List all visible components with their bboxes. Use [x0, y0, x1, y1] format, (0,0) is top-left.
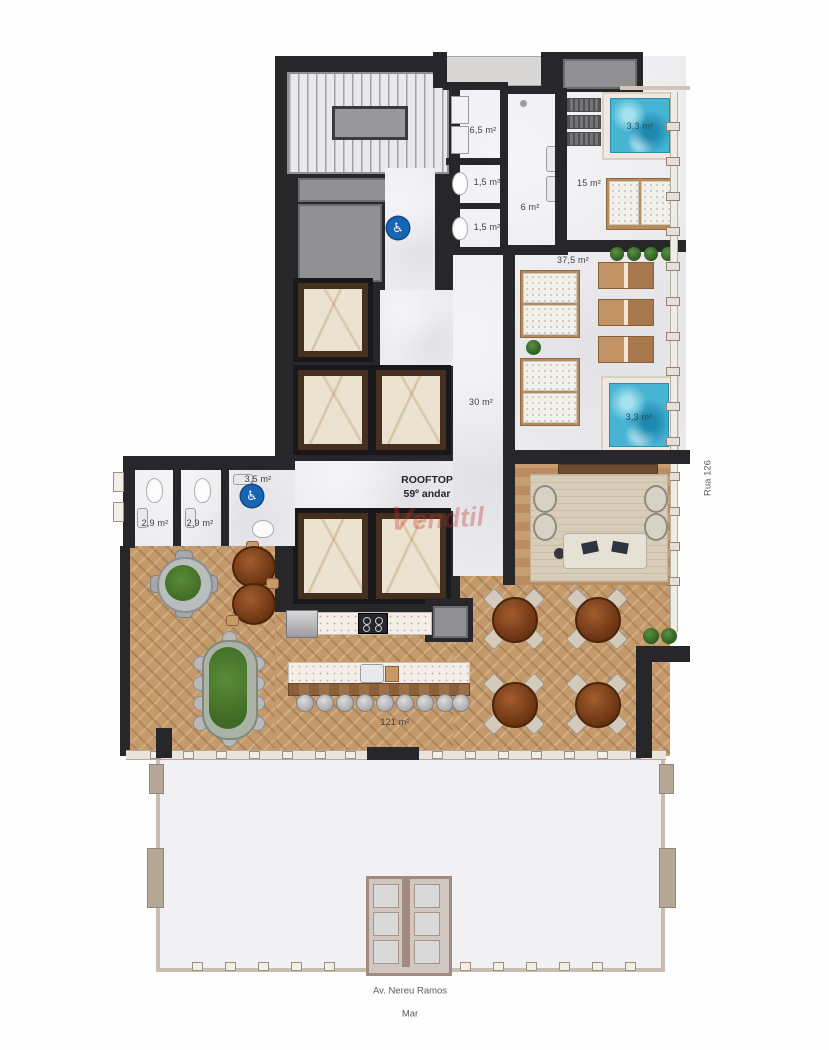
rail-post	[625, 962, 636, 971]
elevator-cab	[298, 513, 368, 599]
area-label-bath1: 2,9 m²	[142, 518, 169, 528]
bar-stool	[296, 694, 314, 712]
watermark-mark: V	[388, 499, 414, 539]
area-label-wc-pcd: 3,5 m²	[245, 474, 272, 484]
area-label-salon: 121 m²	[380, 717, 409, 727]
toilet	[452, 172, 468, 195]
wall	[446, 203, 504, 209]
double-door	[366, 876, 452, 976]
area-label-spa1: 3,3 m²	[627, 121, 654, 131]
salon-wall-left	[120, 546, 130, 756]
plant	[661, 628, 677, 644]
plant	[643, 628, 659, 644]
area-label-corridor: 6,5 m²	[470, 125, 497, 135]
rail-post	[258, 962, 269, 971]
double-lounger	[520, 358, 580, 426]
pilaster	[147, 848, 164, 908]
lounger-cushion	[523, 393, 577, 423]
kitchen-cabinet	[286, 610, 318, 638]
wall	[446, 158, 504, 165]
burner	[363, 625, 370, 632]
railing-clip	[666, 157, 680, 166]
door-pane	[414, 884, 440, 908]
bar-stool	[376, 694, 394, 712]
door-pane	[373, 940, 399, 964]
equipment-box	[563, 59, 637, 89]
rail-post	[597, 751, 608, 759]
elevator-lobby	[380, 290, 456, 366]
pilaster	[659, 764, 674, 794]
sauna-bench	[567, 115, 601, 129]
rail-post	[324, 962, 335, 971]
stairwell	[287, 72, 449, 174]
rail-post	[282, 751, 293, 759]
area-label-wc2: 1,5 m²	[474, 222, 501, 232]
sun-lounger	[598, 336, 654, 363]
street-label-avenue: Av. Nereu Ramos	[373, 986, 447, 997]
dining-table-set	[489, 679, 537, 727]
rail-post	[526, 962, 537, 971]
exterior-wall	[620, 86, 690, 90]
bar-stool	[336, 694, 354, 712]
stair-landing	[332, 106, 408, 140]
dining-table-set	[572, 594, 620, 642]
machine-room	[298, 204, 382, 282]
rail-post	[493, 962, 504, 971]
watermark-logo: Vendtil	[389, 496, 485, 539]
door-pane	[373, 884, 399, 908]
railing-clip	[666, 297, 680, 306]
wall	[443, 82, 508, 90]
pilaster	[659, 848, 676, 908]
deck-threshold	[367, 747, 419, 760]
wall	[123, 456, 135, 548]
kitchen-box	[433, 606, 468, 638]
rail-post	[183, 751, 194, 759]
railing-clip	[666, 192, 680, 201]
game-table-set	[157, 557, 209, 609]
wall	[503, 450, 515, 585]
street-label-sea: Mar	[402, 1009, 418, 1020]
armchair	[533, 513, 557, 541]
railing-clip	[666, 227, 680, 236]
sauna-bench	[567, 98, 601, 112]
sofa	[563, 533, 647, 569]
wall	[636, 646, 652, 756]
planter	[113, 502, 124, 522]
pilaster	[149, 764, 164, 794]
bar-stool	[452, 694, 470, 712]
door-mullion	[402, 879, 410, 967]
dining-table-set	[489, 594, 537, 642]
toilet	[452, 217, 468, 240]
armchair	[533, 485, 557, 513]
accessibility-glyph: ♿	[246, 488, 258, 504]
dining-table	[492, 597, 538, 643]
wall	[446, 247, 506, 255]
double-lounger	[520, 270, 580, 338]
toilet	[252, 520, 274, 538]
pillow	[611, 541, 629, 555]
toilet	[194, 478, 211, 503]
sauna-bench	[567, 132, 601, 146]
bar-sink	[360, 664, 384, 683]
bar-stool	[316, 694, 334, 712]
cooktop	[358, 613, 388, 634]
wall	[555, 88, 567, 246]
armchair	[644, 485, 668, 513]
bar-stool	[356, 694, 374, 712]
railing-clip	[666, 122, 680, 131]
lounger-cushion	[641, 181, 671, 225]
railing-clip	[666, 437, 680, 446]
plant	[610, 247, 624, 261]
closet	[451, 126, 469, 154]
accessibility-glyph: ♿	[392, 220, 404, 236]
sun-lounger	[598, 262, 654, 289]
lounger-cushion	[609, 181, 639, 225]
area-label-spa2: 3,3 m²	[626, 412, 653, 422]
double-lounger	[606, 178, 674, 230]
green-table-top	[165, 565, 201, 601]
accessibility-icon: ♿	[241, 485, 263, 507]
area-label-bath2: 2,9 m²	[187, 518, 214, 528]
floor-plan: ♿	[0, 0, 829, 1050]
planter	[113, 472, 124, 492]
plant	[526, 340, 541, 355]
rail-post	[249, 751, 260, 759]
dining-table	[575, 597, 621, 643]
area-label-hall30: 30 m²	[469, 397, 493, 407]
watermark-text: endtil	[411, 502, 484, 536]
accessibility-icon: ♿	[387, 217, 409, 239]
rail-post	[315, 751, 326, 759]
rail-post	[564, 751, 575, 759]
rail-post	[531, 751, 542, 759]
bar-stool	[416, 694, 434, 712]
shower-head	[520, 100, 527, 107]
railing-clip	[666, 262, 680, 271]
street-label-side: Rua 126	[703, 460, 714, 496]
armchair	[644, 513, 668, 541]
rail-post	[225, 962, 236, 971]
rail-post	[432, 751, 443, 759]
plan-title-line1: ROOFTOP	[401, 473, 453, 487]
area-label-terrace: 37,5 m²	[557, 255, 589, 265]
pillow	[581, 540, 599, 554]
rail-post	[559, 962, 570, 971]
door-pane	[373, 912, 399, 936]
wall-stub	[156, 728, 172, 758]
wall	[500, 86, 508, 248]
door-pane	[414, 912, 440, 936]
rail-post	[291, 962, 302, 971]
rail-post	[345, 751, 356, 759]
plant	[627, 247, 641, 261]
lounger-cushion	[523, 361, 577, 391]
rail-post	[592, 962, 603, 971]
rail-post	[216, 751, 227, 759]
bar-stool	[396, 694, 414, 712]
dining-table	[492, 682, 538, 728]
toilet	[146, 478, 163, 503]
railing-clip	[666, 367, 680, 376]
plant	[644, 247, 658, 261]
green-table-top	[209, 647, 247, 729]
rail-post	[192, 962, 203, 971]
closet	[451, 96, 469, 124]
wall	[503, 250, 515, 462]
elevator-cab	[298, 370, 368, 450]
wall	[221, 470, 229, 546]
sun-lounger	[598, 299, 654, 326]
wall	[173, 470, 181, 546]
area-label-sauna: 15 m²	[577, 178, 601, 188]
elevator-cab	[376, 370, 446, 450]
burner	[375, 625, 382, 632]
cutting-board	[385, 666, 399, 682]
wall	[503, 450, 690, 464]
rail-post	[465, 751, 476, 759]
elevator-cab	[298, 283, 368, 357]
oval-table-set	[202, 640, 254, 736]
railing-clip	[666, 332, 680, 341]
glass-railing	[670, 92, 678, 632]
wall	[123, 456, 295, 470]
lounger-cushion	[523, 305, 577, 335]
chair	[226, 615, 239, 626]
lounger-cushion	[523, 273, 577, 303]
area-label-hall6: 6 m²	[521, 202, 540, 212]
railing-clip	[666, 402, 680, 411]
dining-table-set	[572, 679, 620, 727]
rail-post	[460, 962, 471, 971]
burner	[375, 617, 383, 625]
dining-table	[575, 682, 621, 728]
area-label-wc1: 1,5 m²	[474, 177, 501, 187]
rail-post	[498, 751, 509, 759]
burner	[363, 617, 371, 625]
door-pane	[414, 940, 440, 964]
